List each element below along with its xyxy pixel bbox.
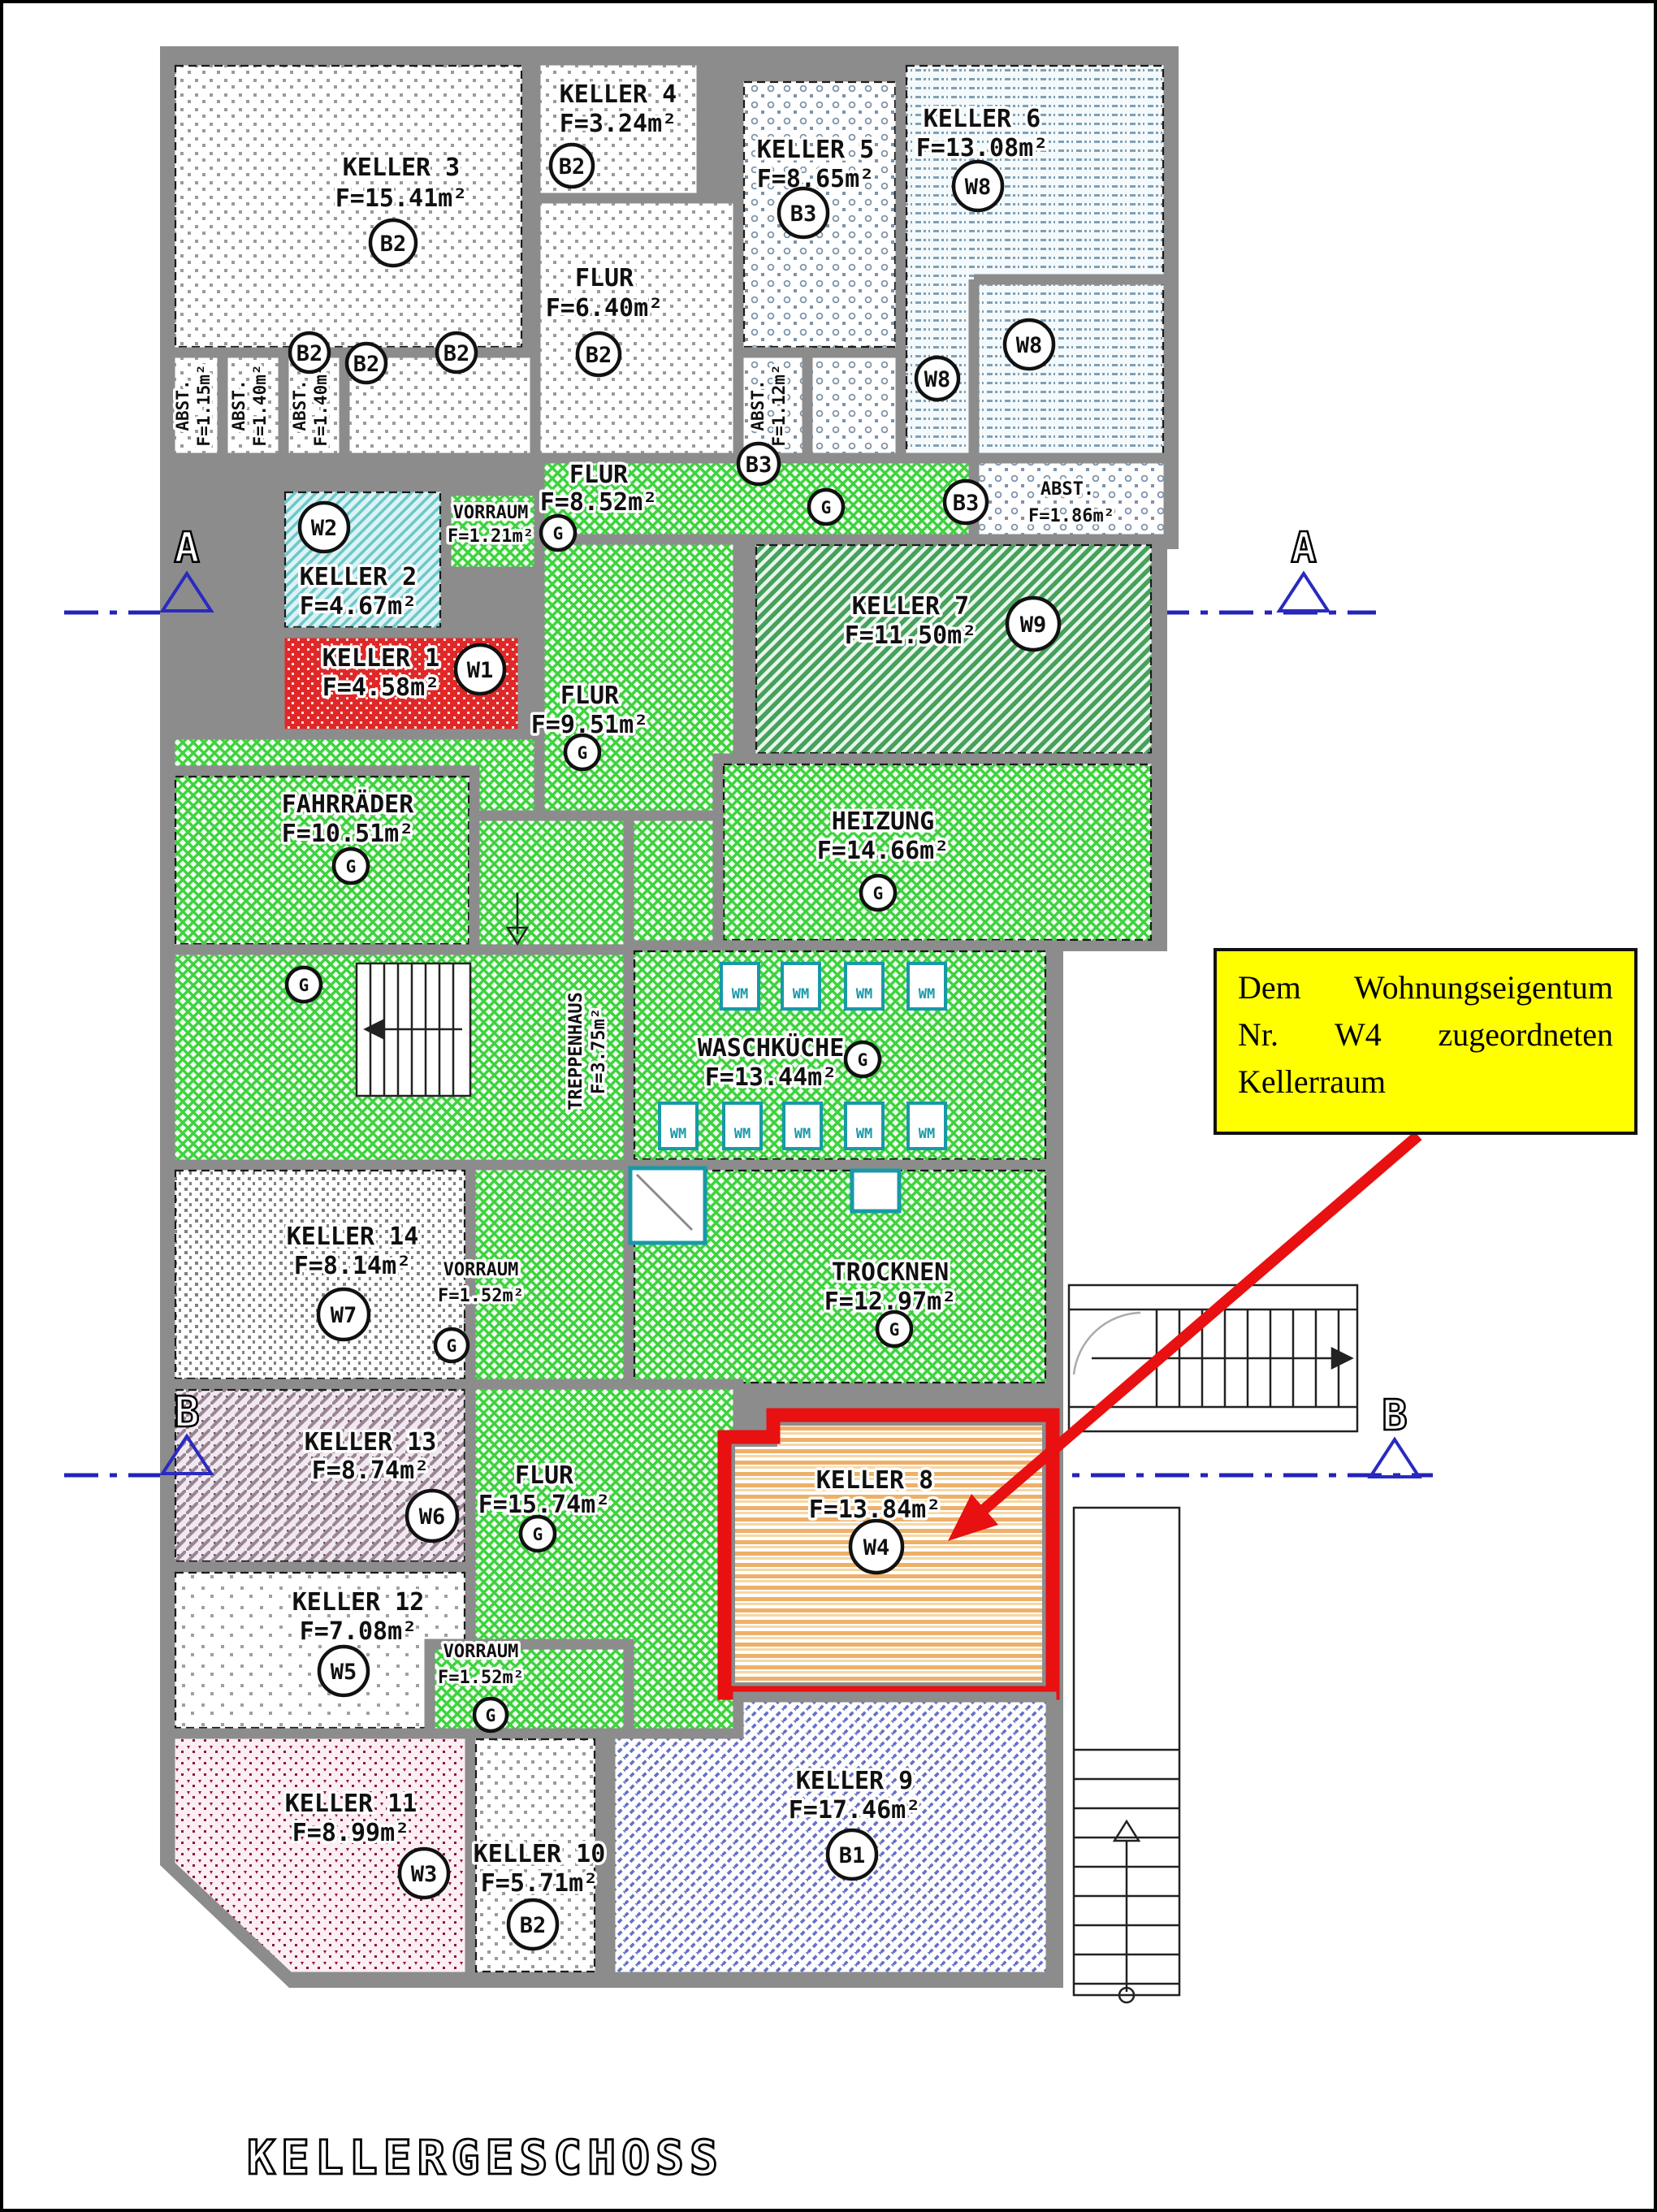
- keller1-area: F=4.58m²: [322, 673, 440, 702]
- waschkueche-name: WASCHKÜCHE: [698, 1032, 845, 1063]
- vorraum121-area: F=1.21m²: [448, 526, 534, 547]
- flur852-area: F=8.52m²: [540, 488, 658, 517]
- keller13-name: KELLER 13: [305, 1428, 437, 1457]
- svg-text:A: A: [1291, 524, 1316, 573]
- badge-abst140b: B2: [437, 333, 476, 372]
- svg-text:W8: W8: [965, 175, 992, 200]
- floorplan-page: WM WM WM WM WM WM WM WM WM: [0, 0, 1657, 2212]
- svg-text:W6: W6: [419, 1504, 446, 1530]
- badge-keller3: B2: [370, 220, 416, 266]
- keller13-area: F=8.74m²: [312, 1457, 430, 1485]
- annotation-box: Dem Wohnungseigentum Nr. W4 zugeordneten…: [1214, 948, 1638, 1135]
- svg-text:G: G: [486, 1706, 496, 1725]
- sink-fixture: [852, 1171, 899, 1211]
- svg-text:B2: B2: [443, 341, 470, 366]
- badge-keller6-main: W8: [954, 162, 1002, 210]
- keller4-area: F=3.24m²: [560, 110, 677, 138]
- abst112-name: ABST.: [748, 379, 768, 431]
- badge-keller12: W5: [319, 1647, 368, 1695]
- svg-text:WM: WM: [919, 1126, 935, 1142]
- badge-vorraum121: G: [541, 516, 575, 550]
- keller5-name: KELLER 5: [757, 136, 875, 164]
- svg-text:B2: B2: [586, 343, 612, 368]
- svg-text:G: G: [873, 884, 884, 903]
- svg-text:WM: WM: [732, 986, 748, 1002]
- svg-text:B: B: [1382, 1392, 1407, 1440]
- svg-text:B2: B2: [296, 341, 323, 366]
- flur1574-name: FLUR: [515, 1461, 574, 1490]
- svg-text:G: G: [553, 524, 564, 543]
- keller3-name: KELLER 3: [343, 154, 461, 182]
- svg-text:G: G: [858, 1050, 868, 1070]
- svg-text:B2: B2: [559, 154, 586, 180]
- svg-text:B2: B2: [353, 352, 380, 377]
- badge-abst140a: B2: [347, 344, 386, 383]
- svg-text:W7: W7: [331, 1303, 357, 1328]
- svg-text:B1: B1: [839, 1843, 866, 1868]
- keller10-area: F=5.71m²: [481, 1869, 599, 1898]
- keller5-area: F=8.65m²: [757, 165, 875, 193]
- badge-keller1: W1: [456, 645, 504, 694]
- svg-text:WM: WM: [794, 1126, 811, 1142]
- treppenhaus-area: F=3.75m²: [589, 1008, 609, 1094]
- keller7-name: KELLER 7: [852, 592, 970, 621]
- vorraum121-name: VORRAUM: [453, 503, 529, 523]
- badge-keller6-small: W8: [916, 357, 958, 400]
- badge-vorraum152b: G: [474, 1699, 507, 1731]
- svg-text:G: G: [889, 1320, 900, 1340]
- svg-text:B2: B2: [520, 1913, 547, 1938]
- flur852-name: FLUR: [569, 461, 629, 489]
- svg-text:G: G: [346, 857, 357, 877]
- flur951-name: FLUR: [560, 682, 620, 710]
- badge-keller7: W9: [1007, 598, 1059, 650]
- svg-text:W1: W1: [467, 658, 494, 683]
- shower-fixture: [630, 1168, 705, 1243]
- badge-flur-top: B2: [578, 333, 620, 375]
- keller7-area: F=11.50m²: [845, 621, 977, 650]
- heizung-area: F=14.66m²: [817, 837, 950, 865]
- abst186-name: ABST.: [1040, 479, 1094, 500]
- abst115-area: F=1.15m²: [194, 364, 214, 446]
- svg-text:B: B: [174, 1388, 199, 1437]
- svg-text:W8: W8: [924, 367, 951, 392]
- keller1-name: KELLER 1: [322, 644, 440, 673]
- fahrraeder-name: FAHRRÄDER: [282, 790, 414, 819]
- vorraum152b-area: F=1.52m²: [438, 1668, 524, 1688]
- badge-keller14: W7: [318, 1289, 369, 1340]
- badge-keller6-sub: W8: [1005, 320, 1053, 369]
- keller6-area: F=13.08m²: [916, 134, 1049, 162]
- keller14-name: KELLER 14: [287, 1223, 419, 1251]
- abst112-area: F=1.12m²: [769, 364, 789, 446]
- flur-top-name: FLUR: [575, 264, 634, 292]
- internal-staircase: [357, 963, 470, 1096]
- treppenhaus-name: TREPPENHAUS: [566, 992, 586, 1110]
- svg-text:WM: WM: [856, 1126, 872, 1142]
- badge-waschkueche: G: [846, 1042, 880, 1076]
- badge-keller4: B2: [551, 145, 593, 187]
- svg-text:B3: B3: [953, 491, 980, 516]
- annotation-line-3: Kellerraum: [1238, 1058, 1613, 1106]
- flur1574-area: F=15.74m²: [478, 1491, 611, 1519]
- svg-text:B3: B3: [790, 201, 817, 227]
- svg-text:B2: B2: [380, 232, 407, 257]
- abst140a-name: ABST.: [229, 379, 249, 431]
- svg-text:B3: B3: [746, 452, 772, 478]
- keller12-area: F=7.08m²: [300, 1617, 417, 1646]
- keller11-name: KELLER 11: [285, 1790, 417, 1818]
- svg-text:W4: W4: [863, 1535, 890, 1561]
- abst140b-name: ABST.: [290, 379, 309, 431]
- badge-keller11: W3: [400, 1849, 448, 1898]
- keller12-name: KELLER 12: [292, 1588, 425, 1617]
- external-staircase-south: [1074, 1508, 1179, 2002]
- badge-flur1574: G: [521, 1517, 555, 1551]
- keller9-area: F=17.46m²: [789, 1796, 921, 1825]
- keller3-area: F=15.41m²: [335, 184, 468, 213]
- annotation-line-1: Dem Wohnungseigentum: [1238, 964, 1613, 1011]
- svg-text:G: G: [821, 498, 832, 517]
- keller10-name: KELLER 10: [474, 1840, 606, 1868]
- badge-flur951: G: [565, 735, 599, 769]
- svg-text:WM: WM: [919, 986, 935, 1002]
- abst115-name: ABST.: [173, 379, 193, 431]
- svg-text:WM: WM: [734, 1126, 751, 1142]
- badge-keller9: B1: [828, 1830, 876, 1879]
- keller8-name: KELLER 8: [816, 1466, 934, 1495]
- svg-text:G: G: [299, 976, 309, 995]
- svg-text:WM: WM: [856, 986, 872, 1002]
- vorraum152a-name: VORRAUM: [443, 1260, 519, 1280]
- svg-text:W5: W5: [331, 1660, 357, 1685]
- keller9-name: KELLER 9: [796, 1767, 914, 1795]
- section-marker-b-right: B: [1370, 1392, 1419, 1477]
- fahrraeder-area: F=10.51m²: [282, 820, 414, 848]
- keller4-name: KELLER 4: [560, 80, 677, 109]
- svg-text:G: G: [578, 743, 588, 763]
- badge-keller5: B3: [779, 188, 828, 237]
- svg-text:G: G: [447, 1336, 457, 1356]
- svg-text:G: G: [533, 1525, 543, 1544]
- badge-keller13: W6: [407, 1491, 457, 1541]
- svg-text:W8: W8: [1016, 333, 1043, 358]
- svg-text:W2: W2: [311, 516, 338, 541]
- badge-corridor-west: G: [287, 967, 321, 1002]
- badge-heizung: G: [861, 876, 895, 910]
- keller14-area: F=8.14m²: [294, 1252, 412, 1280]
- badge-fahrraeder: G: [334, 849, 368, 883]
- room-keller9: [610, 1697, 1051, 1977]
- badge-keller2: W2: [300, 503, 348, 552]
- badge-flur852: G: [809, 490, 843, 524]
- trocknen-name: TROCKNEN: [832, 1258, 950, 1287]
- abst186-area: F=1.86m²: [1028, 506, 1114, 526]
- keller11-area: F=8.99m²: [292, 1819, 410, 1847]
- abst140a-area: F=1.40m²: [250, 364, 270, 446]
- badge-abst186: B3: [945, 481, 987, 523]
- badge-abst115: B2: [290, 333, 329, 372]
- badge-trocknen: G: [877, 1312, 911, 1346]
- page-title: KELLERGESCHOSS: [247, 2130, 724, 2185]
- keller2-area: F=4.67m²: [300, 592, 417, 621]
- keller2-name: KELLER 2: [300, 563, 417, 591]
- svg-text:WM: WM: [793, 986, 809, 1002]
- svg-text:W9: W9: [1020, 613, 1047, 638]
- vorraum152a-area: F=1.52m²: [438, 1286, 524, 1306]
- vorraum152b-name: VORRAUM: [443, 1642, 519, 1662]
- badge-keller10: B2: [508, 1900, 557, 1949]
- badge-abst112: B3: [738, 444, 779, 484]
- flur-top-area: F=6.40m²: [546, 294, 664, 322]
- badge-vorraum152a: G: [435, 1329, 468, 1361]
- annotation-line-2: Nr. W4 zugeordneten: [1238, 1011, 1613, 1058]
- section-marker-a-right: A: [1279, 524, 1328, 611]
- svg-text:WM: WM: [670, 1126, 686, 1142]
- keller6-name: KELLER 6: [924, 105, 1041, 133]
- svg-text:W3: W3: [411, 1862, 438, 1887]
- abst140b-area: F=1.40m²: [311, 364, 331, 446]
- heizung-name: HEIZUNG: [832, 807, 934, 836]
- badge-keller8: W4: [850, 1521, 902, 1573]
- waschkueche-area: F=13.44m²: [705, 1063, 837, 1092]
- svg-text:A: A: [174, 524, 199, 573]
